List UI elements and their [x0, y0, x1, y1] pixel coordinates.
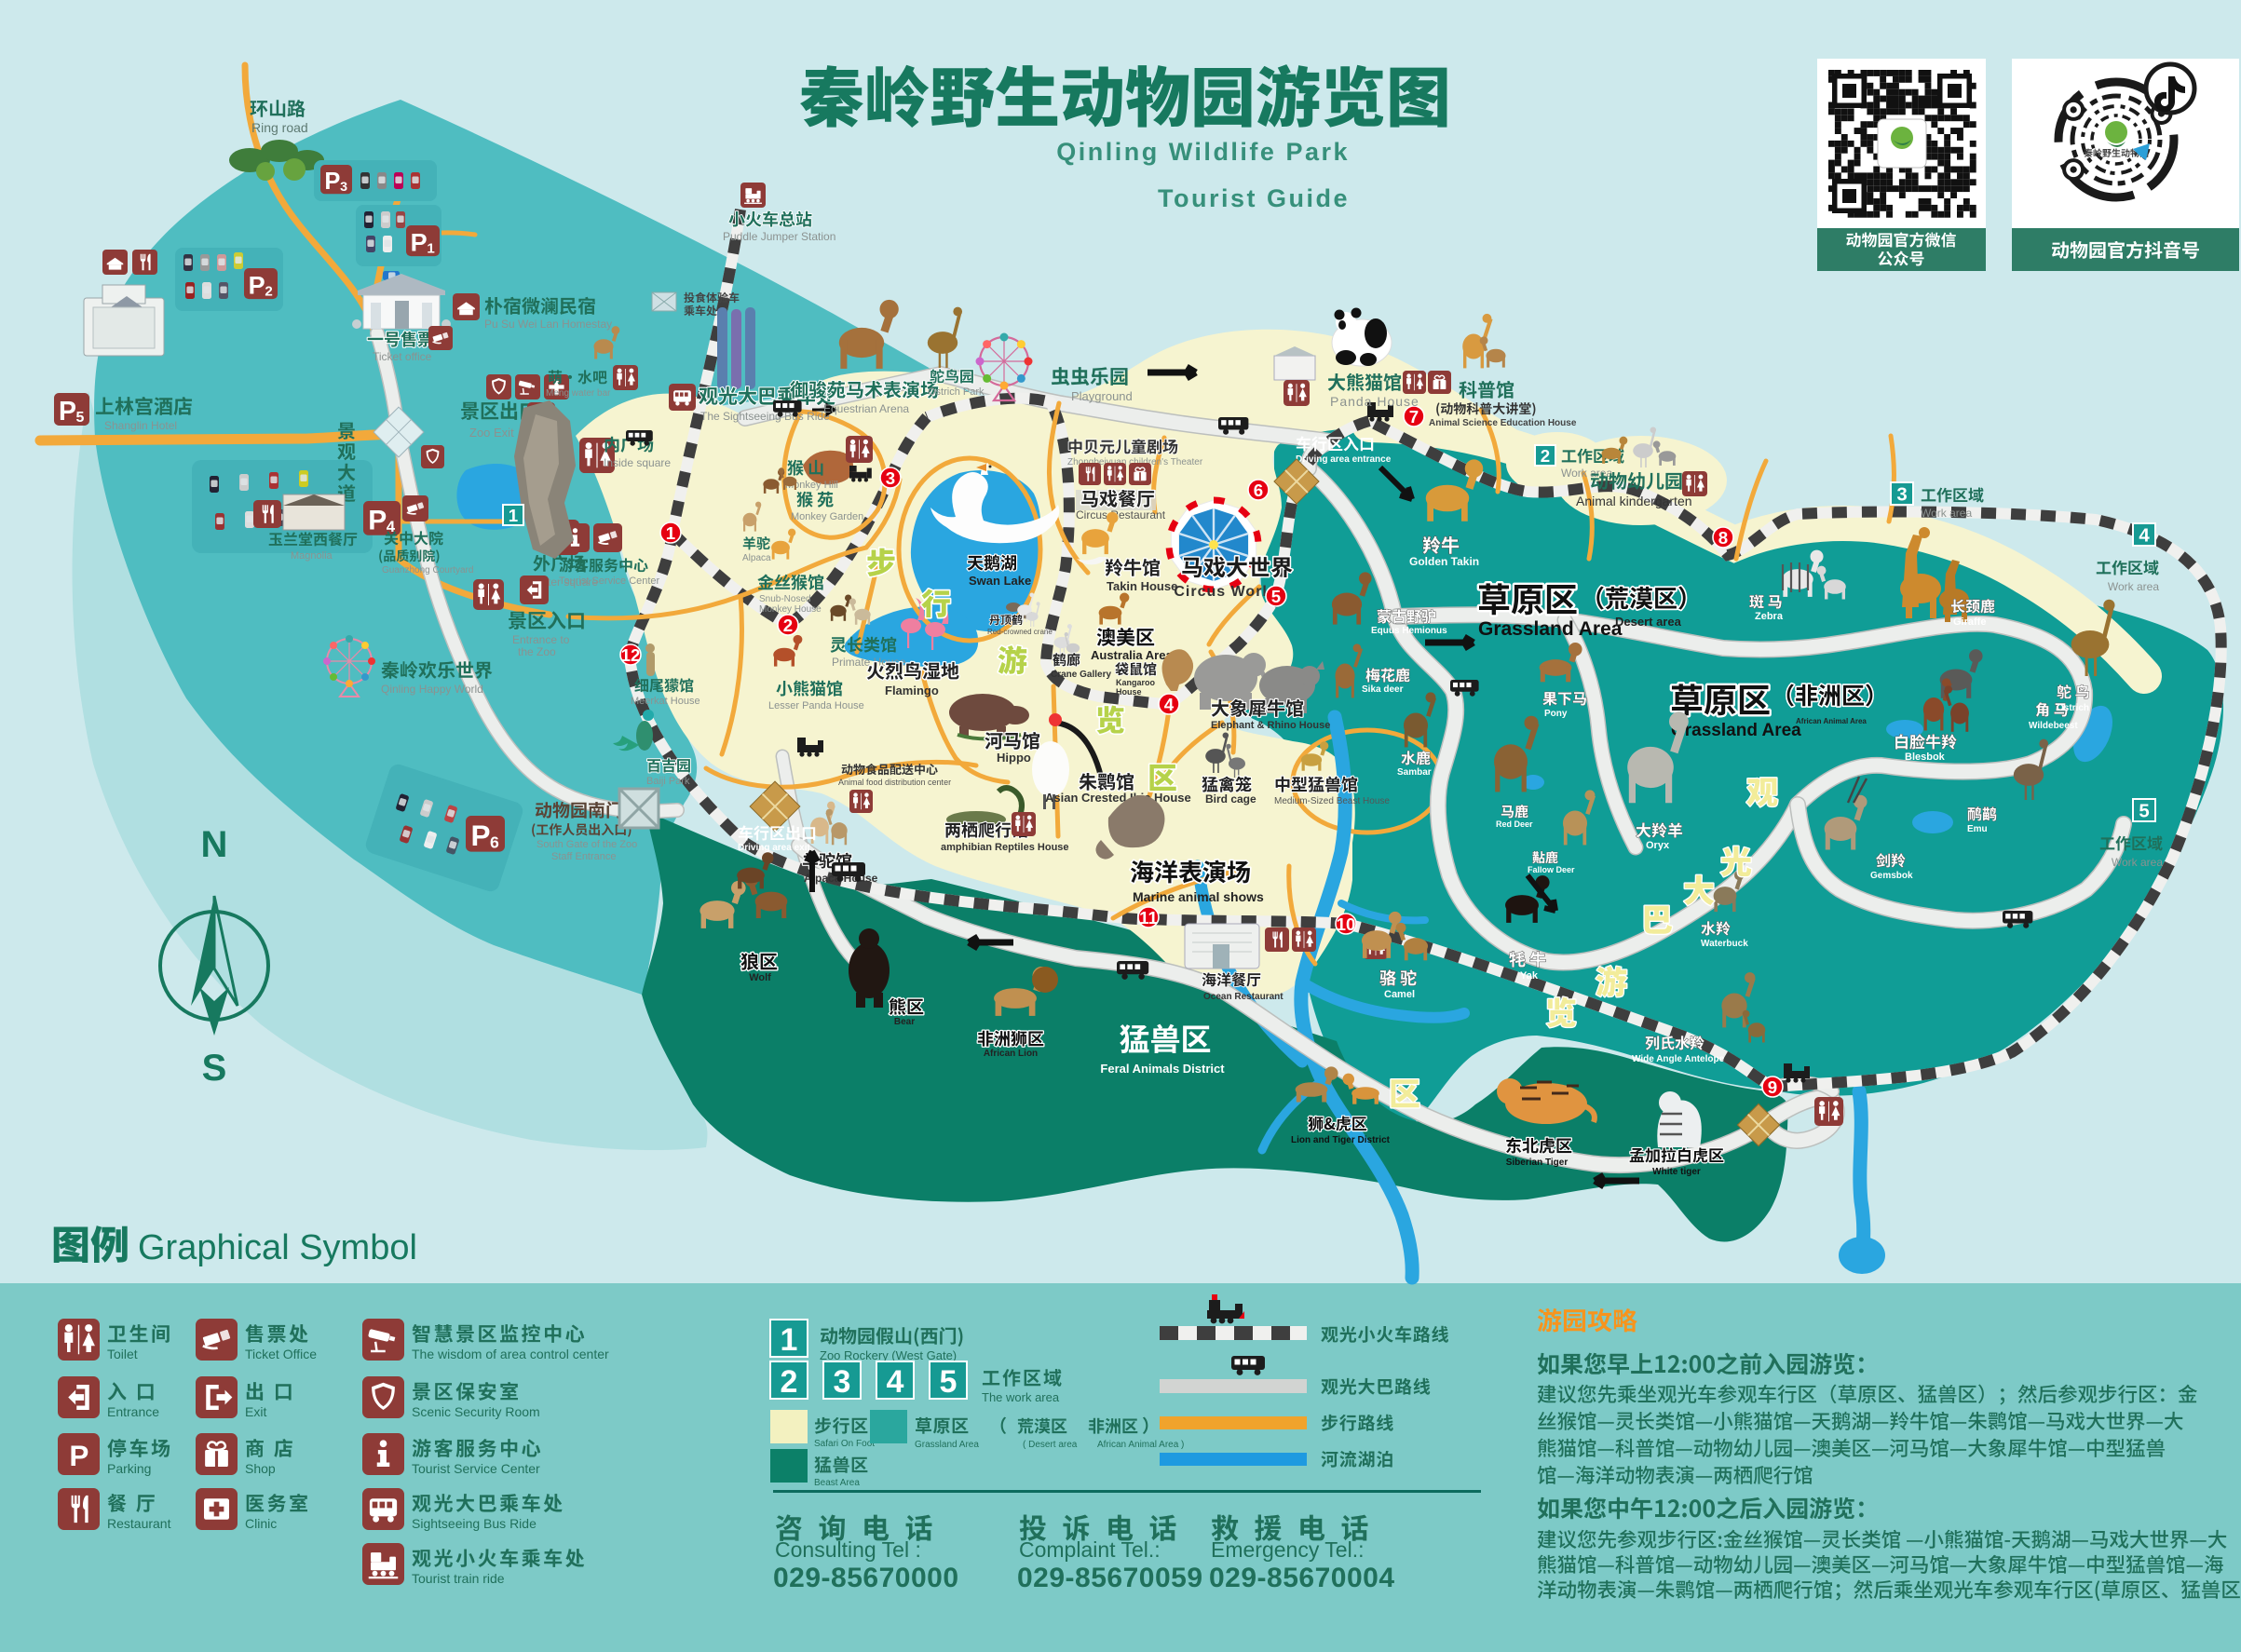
svg-text:Ticket office: Ticket office — [373, 350, 432, 363]
svg-text:Playground: Playground — [1071, 389, 1133, 403]
svg-text:Marine animal shows: Marine animal shows — [1133, 889, 1264, 904]
svg-text:P: P — [324, 169, 340, 195]
svg-text:African Animal Area ): African Animal Area ) — [1097, 1440, 1184, 1450]
svg-text:Zebra: Zebra — [1755, 611, 1784, 622]
svg-text:Qinling Wildlife Park: Qinling Wildlife Park — [1056, 138, 1350, 166]
svg-text:Equestrian Arena: Equestrian Arena — [823, 402, 909, 415]
svg-text:Monkey Garden: Monkey Garden — [791, 511, 863, 522]
svg-text:Hippo: Hippo — [997, 751, 1031, 765]
svg-text:2: 2 — [265, 284, 272, 300]
svg-text:1: 1 — [666, 523, 675, 543]
svg-text:Consulting Tel :: Consulting Tel : — [775, 1537, 921, 1562]
svg-text:the Zoo: the Zoo — [518, 645, 556, 658]
svg-text:Work area: Work area — [1921, 507, 1972, 520]
svg-text:Lesser Panda House: Lesser Panda House — [768, 700, 864, 711]
svg-text:Oryx: Oryx — [1646, 840, 1670, 851]
svg-text:amphibian Reptiles House: amphibian Reptiles House — [941, 842, 1069, 853]
svg-text:Tourist Service Center: Tourist Service Center — [559, 575, 660, 587]
svg-text:3: 3 — [340, 180, 347, 195]
svg-text:3: 3 — [834, 1364, 851, 1400]
svg-text:Puddle Jumper Station: Puddle Jumper Station — [723, 230, 835, 243]
svg-text:Feral Animals District: Feral Animals District — [1100, 1062, 1225, 1076]
svg-text:Elephant & Rhino House: Elephant & Rhino House — [1211, 720, 1330, 731]
svg-text:Bear: Bear — [894, 1017, 915, 1027]
svg-text:Desert area: Desert area — [1615, 615, 1682, 629]
svg-text:Magnolia: Magnolia — [291, 550, 333, 562]
svg-text:Driving area entrance: Driving area entrance — [1296, 454, 1392, 465]
svg-text:029-85670000: 029-85670000 — [773, 1563, 959, 1593]
svg-text:Tourist Service Center: Tourist Service Center — [412, 1461, 540, 1476]
svg-text:4: 4 — [2139, 526, 2150, 547]
svg-text:Siberian Tiger: Siberian Tiger — [1506, 1158, 1569, 1168]
svg-text:Crane Gallery: Crane Gallery — [1051, 670, 1111, 680]
svg-text:7: 7 — [1409, 407, 1419, 427]
svg-text:P: P — [411, 228, 428, 256]
svg-text:Staff Entrance: Staff Entrance — [551, 851, 617, 862]
svg-text:P: P — [470, 819, 490, 852]
svg-text:P: P — [59, 397, 76, 427]
svg-text:2: 2 — [1541, 446, 1550, 466]
svg-text:1: 1 — [509, 506, 518, 525]
svg-text:Kangaroo: Kangaroo — [1116, 678, 1156, 687]
svg-text:Bird cage: Bird cage — [1205, 792, 1256, 806]
svg-text:Baiji Park: Baiji Park — [646, 776, 690, 787]
svg-text:Entrance to: Entrance to — [512, 633, 570, 646]
svg-text:Safari On Foot: Safari On Foot — [814, 1439, 875, 1449]
svg-text:N: N — [201, 824, 228, 865]
svg-text:Shanglin Hotel: Shanglin Hotel — [104, 419, 177, 432]
svg-text:5: 5 — [940, 1364, 958, 1400]
svg-text:8: 8 — [1718, 528, 1728, 548]
svg-text:Clinic: Clinic — [245, 1516, 277, 1531]
svg-text:2: 2 — [783, 616, 793, 635]
svg-text:Shop: Shop — [245, 1461, 276, 1476]
svg-text:Zoo Exit: Zoo Exit — [469, 426, 514, 440]
svg-text:Work area: Work area — [2108, 580, 2159, 593]
svg-text:Lion and Tiger District: Lion and Tiger District — [1291, 1135, 1391, 1145]
svg-text:Yak: Yak — [1520, 970, 1539, 982]
svg-text:House: House — [1116, 687, 1142, 697]
svg-text:Work area: Work area — [2112, 856, 2163, 869]
svg-text:Grassland Area: Grassland Area — [1478, 618, 1623, 640]
svg-text:Tourist train ride: Tourist train ride — [412, 1571, 505, 1586]
svg-text:Asian Crested Ibis House: Asian Crested Ibis House — [1045, 791, 1191, 805]
svg-text:The work area: The work area — [982, 1390, 1060, 1404]
svg-text:Red-crowned crane: Red-crowned crane — [987, 628, 1053, 636]
svg-text:Blesbok: Blesbok — [1905, 752, 1946, 763]
svg-text:Ring road: Ring road — [251, 120, 308, 135]
svg-text:Parking: Parking — [107, 1461, 151, 1476]
svg-text:Grassland Area: Grassland Area — [915, 1440, 979, 1450]
svg-text:6: 6 — [490, 833, 499, 851]
svg-text:South Gate of the Zoo: South Gate of the Zoo — [536, 839, 637, 850]
svg-text:Gemsbok: Gemsbok — [1870, 871, 1913, 881]
svg-text:Exit: Exit — [245, 1404, 266, 1419]
svg-text:5: 5 — [2139, 802, 2149, 822]
svg-text:Sika deer: Sika deer — [1362, 684, 1404, 695]
svg-text:Tourist Guide: Tourist Guide — [1158, 184, 1350, 212]
svg-text:Camel: Camel — [1384, 989, 1415, 1000]
svg-text:S: S — [202, 1048, 227, 1089]
svg-text:Giraffe: Giraffe — [1953, 616, 1986, 628]
svg-text:Ocean Restaurant: Ocean Restaurant — [1203, 992, 1283, 1002]
svg-text:White tiger: White tiger — [1652, 1167, 1701, 1177]
svg-text:Panda House: Panda House — [1330, 394, 1419, 409]
svg-text:Sambar: Sambar — [1397, 767, 1432, 778]
svg-text:Waterbuck: Waterbuck — [1701, 939, 1748, 949]
svg-text:Entrance: Entrance — [107, 1404, 159, 1419]
svg-text:Ostrich: Ostrich — [2057, 703, 2089, 713]
svg-text:9: 9 — [1768, 1077, 1777, 1097]
svg-text:Driving area exit: Driving area exit — [738, 843, 810, 853]
svg-text:Scenic Security Room: Scenic Security Room — [412, 1404, 540, 1419]
svg-text:Alpaca: Alpaca — [742, 553, 771, 563]
svg-text:Complaint Tel.:: Complaint Tel.: — [1019, 1537, 1161, 1562]
svg-text:Restaurant: Restaurant — [107, 1516, 171, 1531]
svg-text:1: 1 — [781, 1322, 798, 1358]
svg-text:029-85670004: 029-85670004 — [1209, 1563, 1395, 1593]
svg-text:1: 1 — [427, 241, 434, 257]
svg-text:Sightseeing Bus Ride: Sightseeing Bus Ride — [412, 1516, 536, 1531]
svg-text:Golden Takin: Golden Takin — [1409, 555, 1479, 568]
svg-text:Medium-Sized Beast House: Medium-Sized Beast House — [1274, 796, 1390, 806]
svg-text:3: 3 — [1896, 485, 1907, 506]
svg-text:Pu Su Wei Lan Homestay: Pu Su Wei Lan Homestay — [484, 318, 612, 331]
svg-text:Swan Lake: Swan Lake — [969, 574, 1031, 588]
svg-text:Pony: Pony — [1544, 709, 1568, 719]
svg-text:6: 6 — [1254, 481, 1263, 500]
svg-text:Wide Angle Antelope: Wide Angle Antelope — [1632, 1054, 1725, 1064]
svg-text:African Lion: African Lion — [984, 1049, 1038, 1059]
svg-text:10: 10 — [1337, 914, 1356, 934]
svg-text:3: 3 — [886, 468, 895, 488]
svg-text:Emergency Tel.:: Emergency Tel.: — [1211, 1537, 1364, 1562]
svg-text:Wildebeest: Wildebeest — [2029, 721, 2078, 731]
svg-text:The wisdom of area control cen: The wisdom of area control center — [412, 1347, 609, 1361]
svg-text:Animal Science Education House: Animal Science Education House — [1429, 418, 1577, 428]
svg-text:Ostrich Park: Ostrich Park — [928, 386, 985, 398]
svg-text:5: 5 — [76, 410, 85, 426]
svg-text:( Desert area: ( Desert area — [1023, 1440, 1078, 1450]
svg-text:African Animal Area: African Animal Area — [1796, 717, 1867, 725]
svg-text:Fallow Deer: Fallow Deer — [1528, 865, 1575, 874]
svg-text:4: 4 — [887, 1364, 904, 1400]
svg-text:11: 11 — [1139, 908, 1158, 928]
svg-text:Animal kindergarten: Animal kindergarten — [1576, 494, 1692, 508]
svg-text:Circus World: Circus World — [1174, 584, 1277, 600]
svg-text:Circus Restaurant: Circus Restaurant — [1076, 508, 1166, 521]
svg-text:Australia Area: Australia Area — [1091, 648, 1173, 662]
svg-text:Wolf: Wolf — [749, 972, 771, 983]
svg-text:Snub-Nosed: Snub-Nosed — [759, 594, 811, 604]
svg-text:12: 12 — [621, 645, 641, 665]
svg-text:Toilet: Toilet — [107, 1347, 138, 1361]
svg-text:Qinling Happy World: Qinling Happy World — [381, 683, 483, 696]
svg-text:Flamingo: Flamingo — [885, 684, 939, 697]
svg-text:Grassland Area: Grassland Area — [1671, 721, 1801, 740]
svg-text:Animal food distribution cente: Animal food distribution center — [838, 778, 951, 787]
svg-text:Inside square: Inside square — [604, 456, 671, 469]
svg-text:Meerkat House: Meerkat House — [631, 696, 700, 707]
svg-text:4: 4 — [1164, 695, 1175, 714]
svg-text:Zoo Rockery (West Gate): Zoo Rockery (West Gate) — [820, 1348, 957, 1362]
svg-text:2: 2 — [781, 1364, 798, 1400]
svg-text:Ticket Office: Ticket Office — [245, 1347, 317, 1361]
svg-text:Beast Area: Beast Area — [814, 1478, 860, 1488]
svg-text:The Sightseeing Bus Ride: The Sightseeing Bus Ride — [700, 410, 830, 423]
svg-text:Meng water bar: Meng water bar — [546, 388, 611, 399]
svg-text:Red Deer: Red Deer — [1496, 819, 1533, 829]
svg-text:P: P — [249, 271, 265, 299]
svg-text:029-85670059: 029-85670059 — [1017, 1563, 1203, 1593]
svg-text:P: P — [368, 505, 387, 535]
svg-text:Takin House: Takin House — [1107, 579, 1177, 593]
svg-text:Guanzhong Courtyard: Guanzhong Courtyard — [382, 565, 473, 575]
svg-text:Monkey House: Monkey House — [759, 604, 822, 615]
svg-text:Equus Hemionus: Equus Hemionus — [1371, 626, 1447, 636]
svg-text:5: 5 — [1271, 587, 1281, 606]
svg-text:Graphical Symbol: Graphical Symbol — [138, 1228, 417, 1267]
svg-text:Emu: Emu — [1967, 824, 1988, 834]
